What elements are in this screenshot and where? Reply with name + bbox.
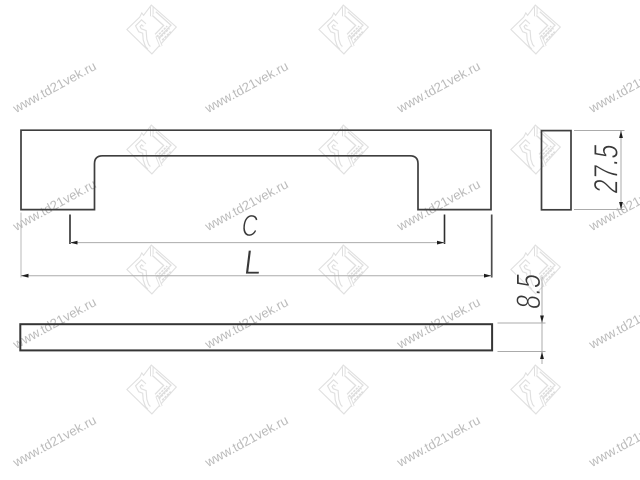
svg-text:8.5: 8.5 (510, 271, 548, 311)
svg-text:27.5: 27.5 (588, 142, 626, 196)
